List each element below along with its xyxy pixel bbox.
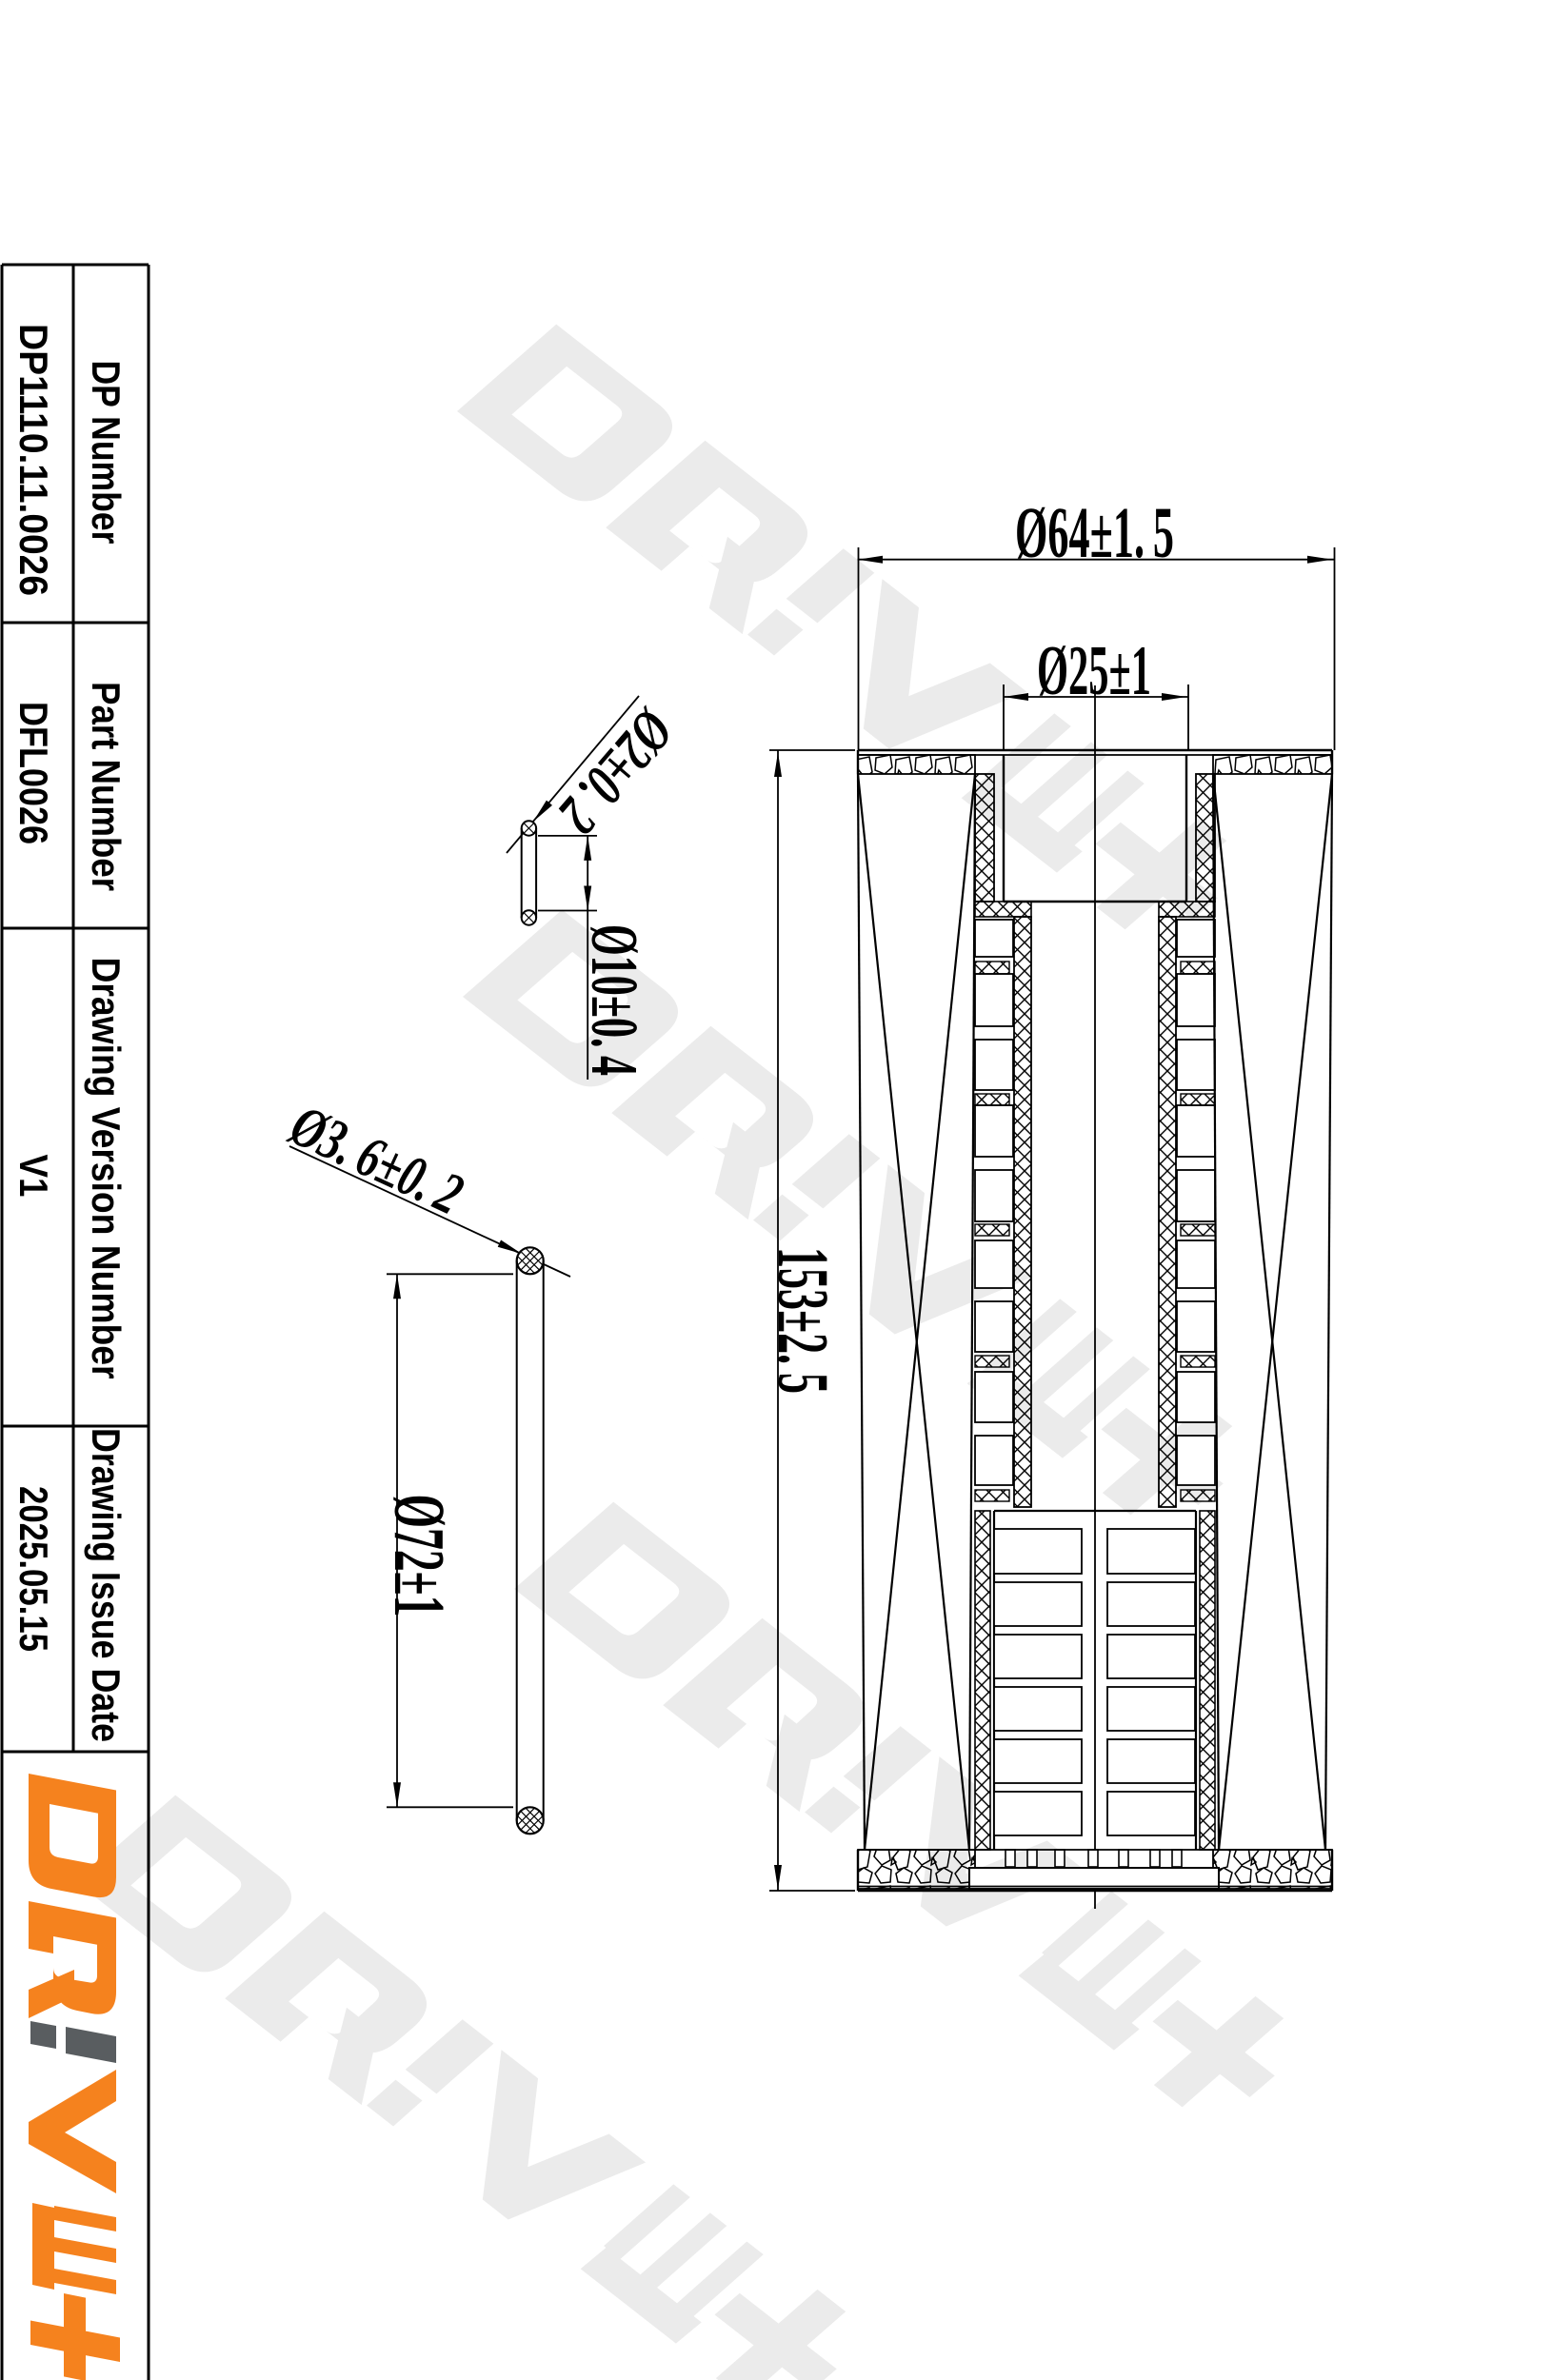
svg-text:DP1110.11.0026: DP1110.11.0026: [11, 324, 56, 596]
svg-text:DP Number: DP Number: [84, 361, 129, 545]
svg-text:Drawing Version Number: Drawing Version Number: [84, 958, 129, 1379]
svg-text:Ø25±1: Ø25±1: [1037, 632, 1151, 710]
svg-text:Part Number: Part Number: [84, 682, 129, 891]
svg-text:Ø64±1. 5: Ø64±1. 5: [1015, 493, 1174, 573]
svg-text:Ø72±1: Ø72±1: [379, 1495, 459, 1617]
svg-text:Ø10±0. 4: Ø10±0. 4: [577, 924, 650, 1076]
svg-text:DFL0026: DFL0026: [11, 702, 56, 844]
svg-text:2025.05.15: 2025.05.15: [11, 1486, 56, 1652]
svg-text:Drawing Issue Date: Drawing Issue Date: [84, 1428, 129, 1742]
svg-text:153±2. 5: 153±2. 5: [763, 1247, 843, 1394]
svg-text:V1: V1: [11, 1155, 56, 1198]
